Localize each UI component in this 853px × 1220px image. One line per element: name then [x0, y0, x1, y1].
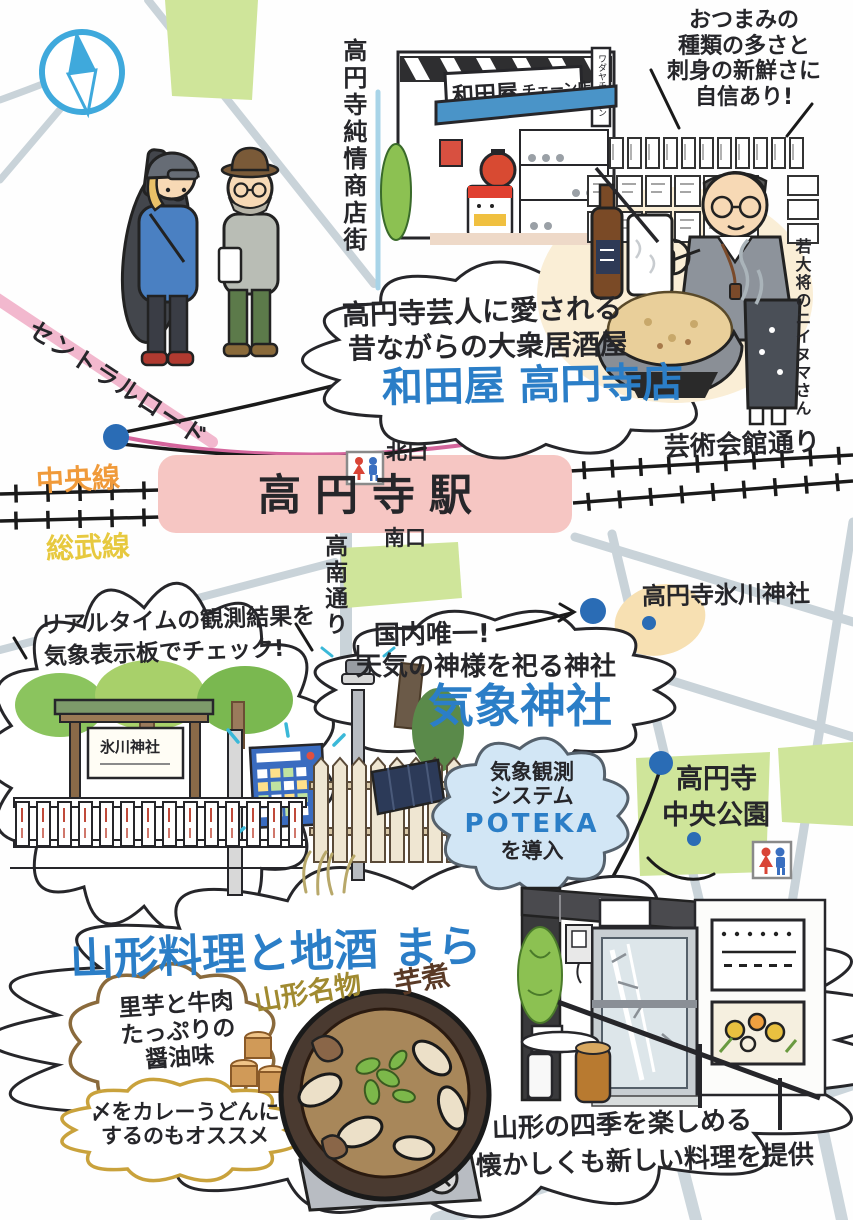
restroom-icon	[753, 842, 791, 878]
bubble-line: 自信あり!	[638, 85, 850, 111]
satoimo-bubble-text: 里芋と牛肉 たっぷりの 醤油味	[95, 987, 260, 1078]
wakadaisho-caption: 若大将のニイヌマさん	[792, 238, 811, 438]
bubble-line: するのもオススメ	[80, 1124, 290, 1148]
tsumami-bubble-text: おつまみの 種類の多さと 刺身の新鮮さに 自信あり!	[638, 8, 850, 110]
konan-street-label: 高南通り	[320, 534, 347, 684]
kisho-bubble-line1: 国内唯一!	[374, 619, 490, 651]
north-exit-label: 北口	[386, 440, 428, 464]
station-name: 高円寺駅	[258, 472, 486, 522]
sobu-line-label: 総武線	[45, 531, 130, 566]
poteka-name: POTEKA	[452, 809, 612, 839]
wadaya-storefront-illustration: ワダヤチェーン 和田屋 チェーン店	[381, 48, 616, 245]
shotengai-street-label: 高円寺純情商店街	[338, 38, 366, 298]
koenji-illustrated-map: ワダヤチェーン 和田屋 チェーン店	[0, 0, 853, 1220]
bubble-line: 種類の多さと	[638, 34, 850, 60]
kisho-bubble-line2: 天気の神様を祀る神社	[356, 652, 616, 682]
bubble-line: を導入	[452, 839, 612, 863]
street-musicians-illustration	[114, 148, 278, 365]
chuo-line-label: 中央線	[35, 462, 121, 499]
bubble-line: 刺身の新鮮さに	[638, 59, 850, 85]
bubble-line: 〆をカレーうどんに	[80, 1100, 290, 1124]
south-exit-label: 南口	[384, 526, 426, 550]
wadaya-title: 和田屋 高円寺店	[382, 359, 684, 412]
compass-north-icon	[37, 25, 128, 119]
hikawa-sign-label: 氷川神社	[100, 738, 160, 756]
poteka-bubble-text: 気象観測 システム POTEKA を導入	[452, 760, 612, 863]
bubble-line: 気象観測	[452, 760, 612, 784]
shime-bubble-text: 〆をカレーうどんに するのもオススメ	[80, 1100, 290, 1149]
park-label-line2: 中央公園	[662, 800, 770, 831]
hikawa-shrine-label: 高円寺氷川神社	[642, 581, 810, 612]
park-label-line1: 高円寺	[676, 764, 757, 795]
geijutsu-street-label: 芸術会館通り	[664, 427, 821, 463]
bubble-line: おつまみの	[638, 8, 850, 34]
kisho-shrine-title: 気象神社	[428, 680, 612, 733]
bubble-line: システム	[452, 784, 612, 808]
